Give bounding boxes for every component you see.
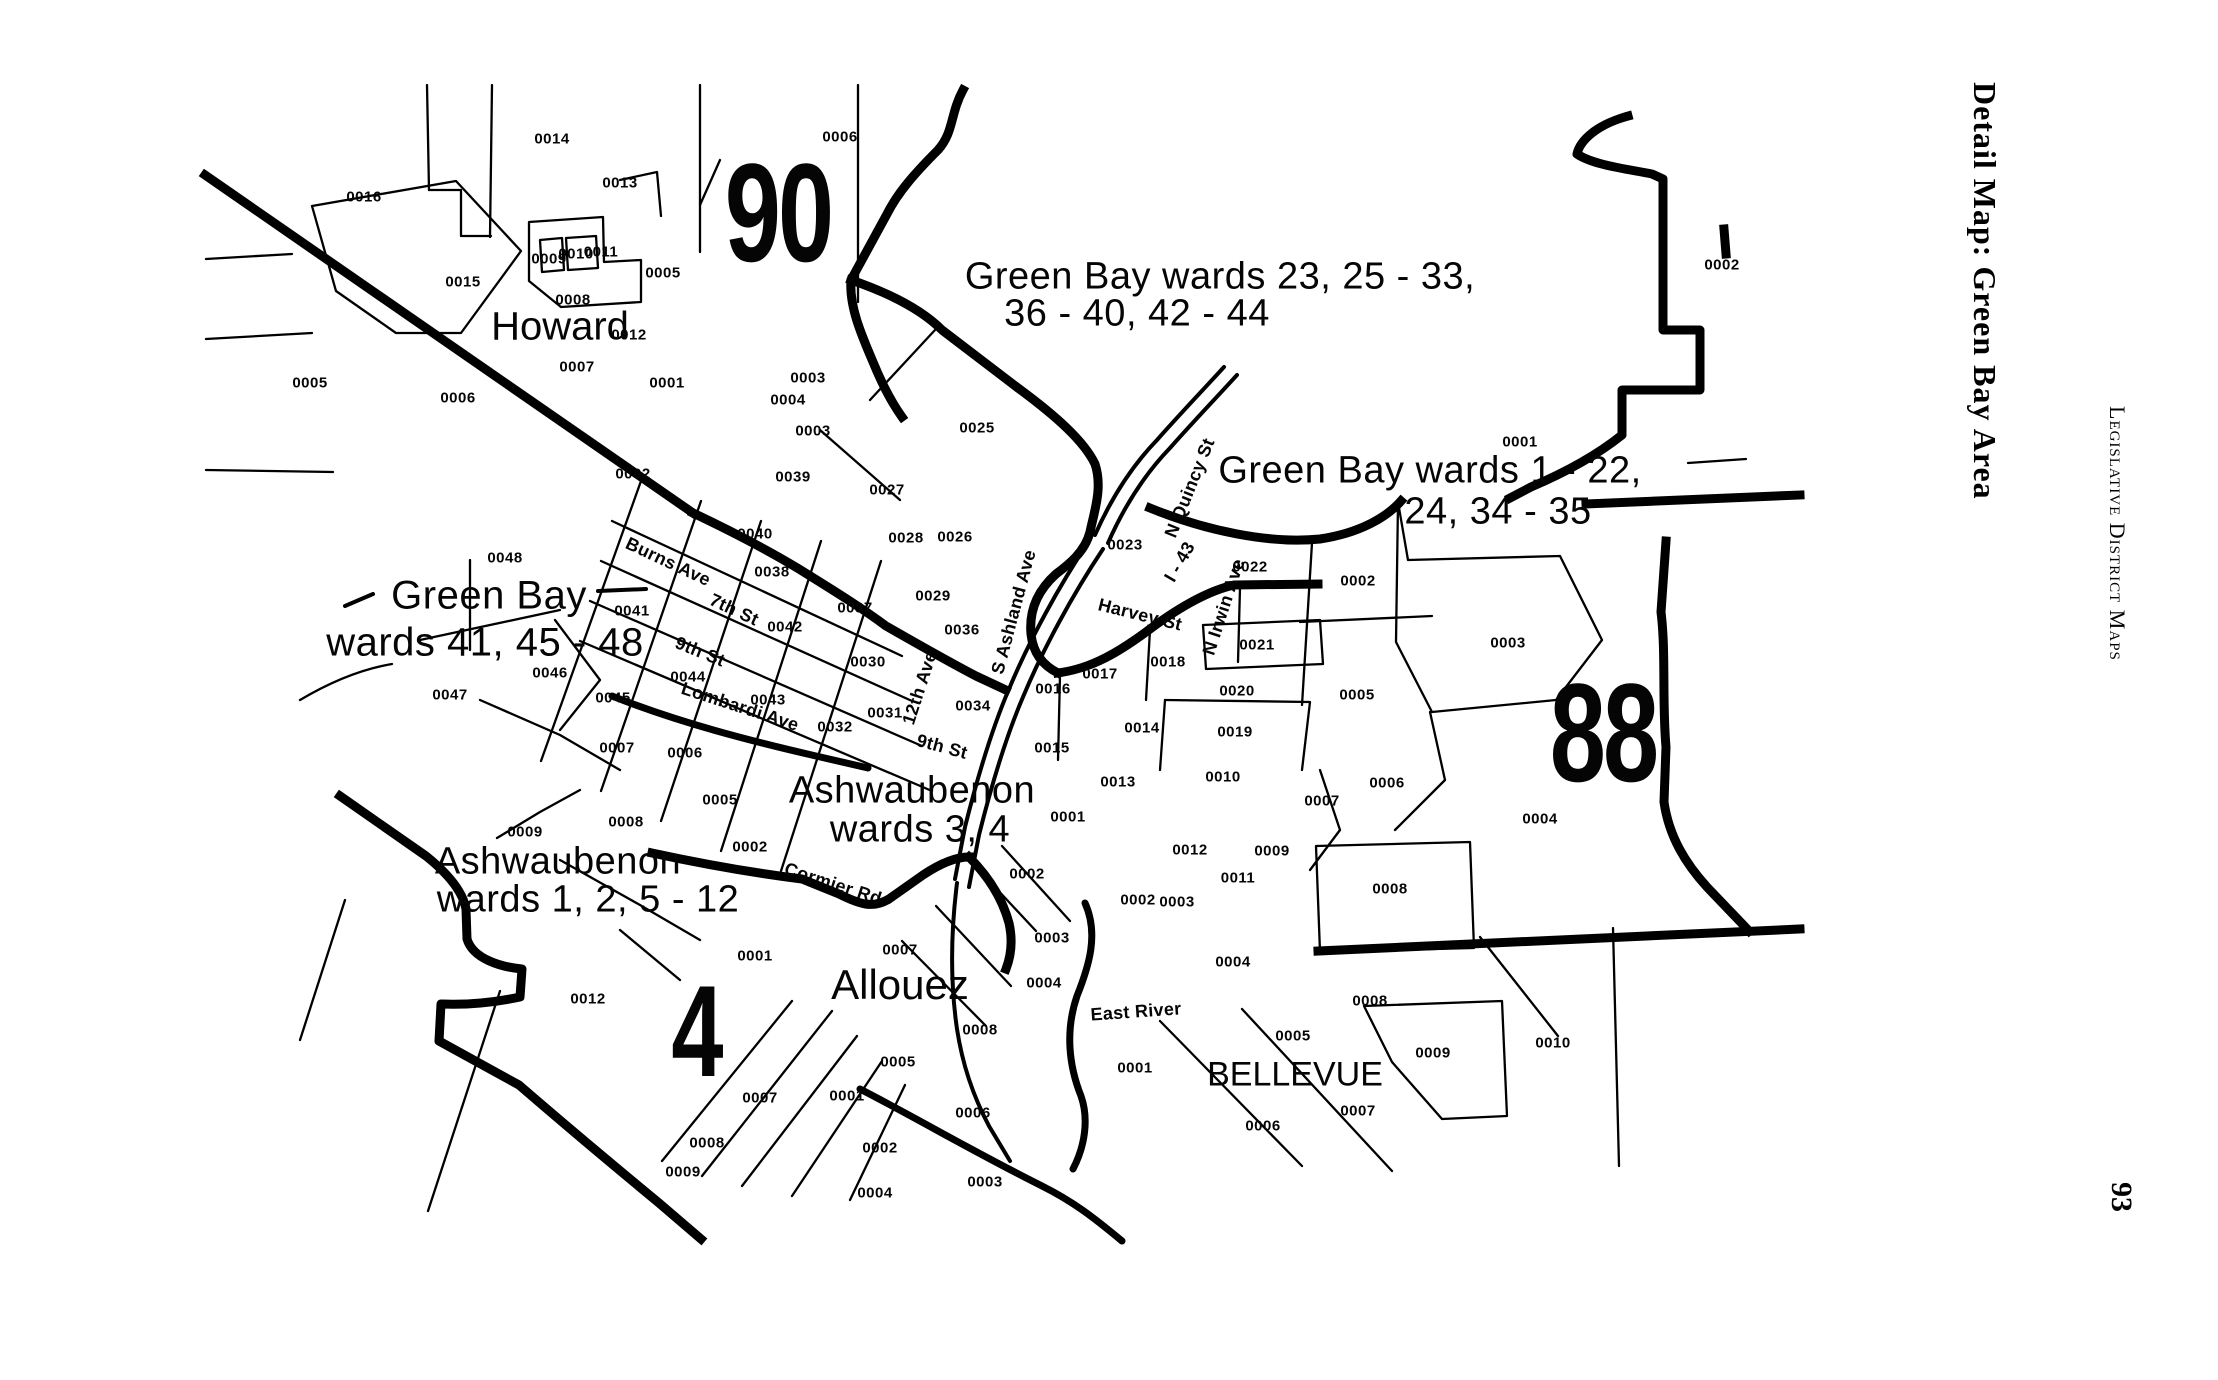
- tract-code: 0008: [689, 1135, 724, 1152]
- street-label: 9th St: [914, 730, 969, 764]
- map-labels-layer: 90884Green Bay wards 23, 25 - 33,36 - 40…: [0, 0, 2218, 1380]
- tract-code: 0008: [555, 292, 590, 309]
- tract-code: 0007: [599, 740, 634, 757]
- tract-code: 0004: [1215, 954, 1250, 971]
- tract-code: 0016: [1035, 681, 1070, 698]
- tract-code: 0011: [584, 244, 619, 261]
- street-label: 7th St: [706, 590, 762, 631]
- map-canvas: 90884Green Bay wards 23, 25 - 33,36 - 40…: [0, 0, 2218, 1380]
- tract-code: 0021: [1239, 637, 1274, 654]
- tract-code: 0014: [534, 131, 569, 148]
- tract-code: 0048: [487, 550, 522, 567]
- tract-code: 0002: [615, 466, 650, 483]
- tract-code: 0001: [1117, 1060, 1152, 1077]
- tract-code: 0005: [1275, 1028, 1310, 1045]
- street-label: East River: [1090, 998, 1182, 1025]
- tract-code: 0020: [1219, 683, 1254, 700]
- ward-annotation: Ashwaubenon: [789, 770, 1035, 813]
- tract-code: 0005: [1339, 687, 1374, 704]
- street-label: Harvey St: [1096, 594, 1184, 635]
- tract-code: 0008: [1372, 881, 1407, 898]
- tract-code: 0006: [1245, 1118, 1280, 1135]
- street-label: 12th Ave: [898, 649, 941, 728]
- tract-code: 0008: [962, 1022, 997, 1039]
- ward-annotation: 36 - 40, 42 - 44: [1004, 293, 1270, 336]
- tract-code: 0006: [440, 390, 475, 407]
- tract-code: 0030: [850, 654, 885, 671]
- street-label: Cormier Rd: [782, 858, 885, 909]
- tract-code: 0004: [770, 392, 805, 409]
- tract-code: 0008: [1352, 993, 1387, 1010]
- tract-code: 0041: [614, 603, 649, 620]
- tract-code: 0002: [732, 839, 767, 856]
- tract-code: 0029: [915, 588, 950, 605]
- tract-code: 0008: [608, 814, 643, 831]
- tract-code: 0010: [1205, 769, 1240, 786]
- tract-code: 0002: [1009, 866, 1044, 883]
- district-number: 88: [1550, 652, 1656, 814]
- tract-code: 0006: [822, 129, 857, 146]
- street-label: 9th St: [672, 633, 728, 672]
- tract-code: 0034: [955, 698, 990, 715]
- tract-code: 0012: [611, 327, 646, 344]
- tract-code: 0007: [742, 1090, 777, 1107]
- tract-code: 0003: [795, 423, 830, 440]
- tract-code: 0027: [869, 482, 904, 499]
- tract-code: 0025: [959, 420, 994, 437]
- tract-code: 0006: [955, 1105, 990, 1122]
- tract-code: 0019: [1217, 724, 1252, 741]
- tract-code: 0013: [1100, 774, 1135, 791]
- tract-code: 0040: [737, 526, 772, 543]
- tract-code: 0015: [1034, 740, 1069, 757]
- tract-code: 0012: [1172, 842, 1207, 859]
- tract-code: 0042: [767, 619, 802, 636]
- tract-code: 0022: [1232, 559, 1267, 576]
- place-label: Allouez: [831, 961, 969, 1009]
- tract-code: 0039: [775, 469, 810, 486]
- tract-code: 0031: [867, 705, 902, 722]
- tract-code: 0004: [1522, 811, 1557, 828]
- tract-code: 0002: [1340, 573, 1375, 590]
- ward-annotation: Green Bay: [391, 574, 587, 619]
- tract-code: 0007: [1340, 1103, 1375, 1120]
- ward-annotation: Ashwaubenon: [435, 841, 681, 884]
- tract-code: 0001: [737, 948, 772, 965]
- tract-code: 0015: [445, 274, 480, 291]
- ward-annotation: wards 41, 45 - 48: [326, 621, 644, 666]
- tract-code: 0026: [937, 529, 972, 546]
- tract-code: 0003: [1159, 894, 1194, 911]
- tract-code: 0013: [602, 175, 637, 192]
- street-label: Burns Ave: [622, 533, 714, 591]
- tract-code: 0002: [1704, 257, 1739, 274]
- ward-annotation: wards 3, 4: [830, 809, 1010, 852]
- tract-code: 0003: [1490, 635, 1525, 652]
- tract-code: 0001: [649, 375, 684, 392]
- street-label: S Ashland Ave: [987, 547, 1040, 676]
- tract-code: 0009: [1254, 843, 1289, 860]
- tract-code: 0005: [880, 1054, 915, 1071]
- district-number: 90: [725, 132, 831, 294]
- series-title: Legislative District Maps: [2104, 406, 2130, 661]
- tract-code: 0007: [559, 359, 594, 376]
- tract-code: 0047: [432, 687, 467, 704]
- tract-code: 0012: [570, 991, 605, 1008]
- district-number: 4: [671, 956, 720, 1106]
- tract-code: 0005: [292, 375, 327, 392]
- tract-code: 0016: [346, 189, 381, 206]
- tract-code: 0046: [532, 665, 567, 682]
- tract-code: 0032: [817, 719, 852, 736]
- tract-code: 0010: [1535, 1035, 1570, 1052]
- tract-code: 0003: [967, 1174, 1002, 1191]
- tract-code: 0045: [595, 690, 630, 707]
- ward-annotation: wards 1, 2, 5 - 12: [437, 879, 740, 922]
- tract-code: 0036: [944, 622, 979, 639]
- place-label: BELLEVUE: [1207, 1056, 1383, 1095]
- scanned-page: 90884Green Bay wards 23, 25 - 33,36 - 40…: [0, 0, 2218, 1380]
- tract-code: 0011: [1221, 870, 1256, 887]
- place-label: Howard: [491, 305, 629, 350]
- page-number: 93: [2104, 1182, 2138, 1212]
- tract-code: 0023: [1107, 537, 1142, 554]
- tract-code: 0007: [882, 942, 917, 959]
- tract-code: 0044: [670, 669, 705, 686]
- tract-code: 0002: [862, 1140, 897, 1157]
- tract-code: 0001: [1050, 809, 1085, 826]
- tract-code: 0006: [667, 745, 702, 762]
- tract-code: 0001: [829, 1088, 864, 1105]
- tract-code: 0005: [645, 265, 680, 282]
- ward-annotation: 24, 34 - 35: [1404, 491, 1591, 534]
- tract-code: 0004: [1026, 975, 1061, 992]
- tract-code: 0038: [754, 564, 789, 581]
- tract-code: 0014: [1124, 720, 1159, 737]
- tract-code: 0009: [1415, 1045, 1450, 1062]
- tract-code: 0006: [1369, 775, 1404, 792]
- tract-code: 0002: [1120, 892, 1155, 909]
- street-label: N Quincy St: [1161, 435, 1220, 541]
- street-label: I - 43: [1160, 538, 1200, 586]
- tract-code: 0028: [888, 530, 923, 547]
- tract-code: 0037: [837, 600, 872, 617]
- tract-code: 0005: [702, 792, 737, 809]
- tract-code: 0003: [790, 370, 825, 387]
- tract-code: 0017: [1082, 666, 1117, 683]
- tract-code: 0007: [1304, 793, 1339, 810]
- tract-code: 0009: [665, 1164, 700, 1181]
- tract-code: 0003: [1034, 930, 1069, 947]
- page-title: Detail Map: Green Bay Area: [1966, 82, 2003, 500]
- ward-annotation: Green Bay wards 1 - 22,: [1218, 450, 1641, 493]
- tract-code: 0018: [1150, 654, 1185, 671]
- tract-code: 0043: [750, 692, 785, 709]
- tract-code: 0004: [857, 1185, 892, 1202]
- tract-code: 0009: [507, 824, 542, 841]
- tract-code: 0001: [1502, 434, 1537, 451]
